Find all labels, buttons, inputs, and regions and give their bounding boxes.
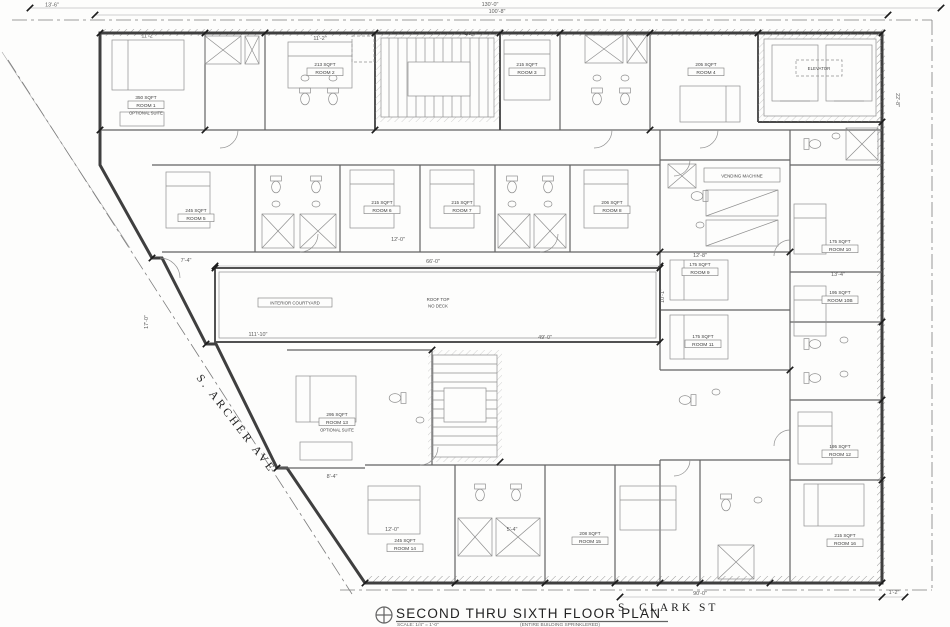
room-label: 215 SQFT ROOM 16 [827,533,863,547]
svg-text:ROOM 10B: ROOM 10B [827,298,852,304]
svg-text:1'-2": 1'-2" [889,590,900,596]
svg-text:245 SQFT: 245 SQFT [185,208,206,213]
svg-text:ROOM 1: ROOM 1 [136,103,156,109]
svg-text:5'-4": 5'-4" [507,527,518,533]
svg-text:100'-8": 100'-8" [489,9,506,15]
room-label: 350 SQFT ROOM 1 OPTIONAL SUITE [128,95,164,116]
svg-text:12'-0": 12'-0" [391,237,405,243]
room-label: 215 SQFT ROOM 7 [444,200,480,214]
svg-text:8'-4": 8'-4" [327,474,338,480]
svg-text:ROOM 10: ROOM 10 [829,247,851,253]
street-archer-ave: S. ARCHER AVE [194,372,278,475]
svg-text:215 SQFT: 215 SQFT [516,62,537,67]
svg-text:215 SQFT: 215 SQFT [834,533,855,538]
vending-room: VENDING MACHINE [668,164,780,246]
courtyard-label: INTERIOR COURTYARD [270,301,320,306]
bath-fixtures [271,75,848,511]
svg-text:208 SQFT: 208 SQFT [579,531,600,536]
elevator-shaft: ELEVATOR [758,33,882,122]
plan-title: SECOND THRU SIXTH FLOOR PLAN [396,606,661,621]
svg-text:4'-6": 4'-6" [465,32,476,38]
svg-text:11'-2": 11'-2" [141,34,154,40]
room-label: 215 SQFT ROOM 3 [509,62,545,76]
vending-label: VENDING MACHINE [721,174,763,179]
svg-text:ROOM 3: ROOM 3 [517,70,537,76]
room-label: 206 SQFT ROOM 8 [594,200,630,214]
room-label: 205 SQFT ROOM 4 [688,62,724,76]
svg-text:215 SQFT: 215 SQFT [371,200,392,205]
title-block: SECOND THRU SIXTH FLOOR PLAN SCALE: 1/4"… [376,606,668,627]
svg-text:OPTIONAL SUITE: OPTIONAL SUITE [129,111,163,116]
svg-text:206 SQFT: 206 SQFT [601,200,622,205]
stairwell-center [428,350,502,462]
elevator-label: ELEVATOR [808,66,831,71]
svg-text:12'-0": 12'-0" [385,527,399,533]
svg-text:ROOM 7: ROOM 7 [452,208,472,214]
svg-text:ROOM 8: ROOM 8 [602,208,622,214]
svg-text:90'-0": 90'-0" [693,591,707,597]
svg-text:175 SQFT: 175 SQFT [689,262,710,267]
room-label: 175 SQFT ROOM 11 [685,334,721,348]
svg-text:175 SQFT: 175 SQFT [692,334,713,339]
svg-text:ROOM 9: ROOM 9 [690,270,710,276]
room-label: 295 SQFT ROOM 13 OPTIONAL SUITE [319,412,355,433]
svg-text:ROOM 2: ROOM 2 [315,70,335,76]
svg-text:ROOM 11: ROOM 11 [692,342,714,348]
svg-text:OPTIONAL SUITE: OPTIONAL SUITE [320,428,354,433]
room-label: 195 SQFT ROOM 12 [822,444,858,458]
svg-text:111'-10": 111'-10" [249,332,268,338]
svg-text:13'-4": 13'-4" [831,272,845,278]
svg-text:10'-1": 10'-1" [660,289,666,303]
svg-text:245 SQFT: 245 SQFT [394,538,415,543]
interior-courtyard: INTERIOR COURTYARD ROOF TOP NO DECK [215,268,660,342]
svg-text:ROOM 13: ROOM 13 [326,420,348,426]
svg-text:7'-4": 7'-4" [181,258,192,264]
svg-text:ROOM 12: ROOM 12 [829,452,851,458]
detail-marker-icon [376,607,392,623]
rooftop-note-2: NO DECK [428,304,448,309]
room-label: 245 SQFT ROOM 5 [178,208,214,222]
svg-text:ROOM 14: ROOM 14 [394,546,416,552]
rooftop-note-1: ROOF TOP [427,297,450,302]
svg-text:ROOM 15: ROOM 15 [579,539,601,545]
svg-text:22'-8": 22'-8" [894,93,900,107]
room-labels: 350 SQFT ROOM 1 OPTIONAL SUITE 213 SQFT … [128,62,863,552]
svg-text:175 SQFT: 175 SQFT [829,239,850,244]
svg-text:215 SQFT: 215 SQFT [451,200,472,205]
floor-plan-drawing: INTERIOR COURTYARD ROOF TOP NO DECK [0,0,950,627]
room-label: 215 SQFT ROOM 6 [364,200,400,214]
room-label: 175 SQFT ROOM 10 [822,239,858,253]
svg-text:ROOM 6: ROOM 6 [372,208,392,214]
svg-text:17'-0": 17'-0" [144,315,150,329]
room-label: 208 SQFT ROOM 15 [572,531,608,545]
svg-text:295 SQFT: 295 SQFT [326,412,347,417]
svg-text:213 SQFT: 213 SQFT [314,62,335,67]
svg-text:66'-0": 66'-0" [426,259,440,265]
floor-plan-page: INTERIOR COURTYARD ROOF TOP NO DECK [0,0,950,627]
sprinkler-note: (ENTIRE BUILDING SPRINKLERED) [520,622,600,627]
room-label: 195 SQFT ROOM 10B [822,290,858,304]
room-label: 213 SQFT ROOM 2 [307,62,343,76]
svg-text:12'-8": 12'-8" [693,253,707,259]
plan-scale: SCALE: 1/4" = 1'-0" [397,622,439,627]
svg-text:130'-0": 130'-0" [482,2,499,8]
svg-text:195 SQFT: 195 SQFT [829,444,850,449]
room-label: 175 SQFT ROOM 9 [682,262,718,276]
svg-text:350 SQFT: 350 SQFT [135,95,156,100]
svg-text:ROOM 5: ROOM 5 [186,216,206,222]
svg-text:13'-6": 13'-6" [45,3,59,9]
svg-text:ROOM 16: ROOM 16 [834,541,856,547]
svg-text:49'-0": 49'-0" [538,335,552,341]
svg-text:ROOM 4: ROOM 4 [696,70,716,76]
svg-text:205 SQFT: 205 SQFT [695,62,716,67]
svg-text:195 SQFT: 195 SQFT [829,290,850,295]
svg-text:11'-2": 11'-2" [313,36,326,42]
room-label: 245 SQFT ROOM 14 [387,538,423,552]
